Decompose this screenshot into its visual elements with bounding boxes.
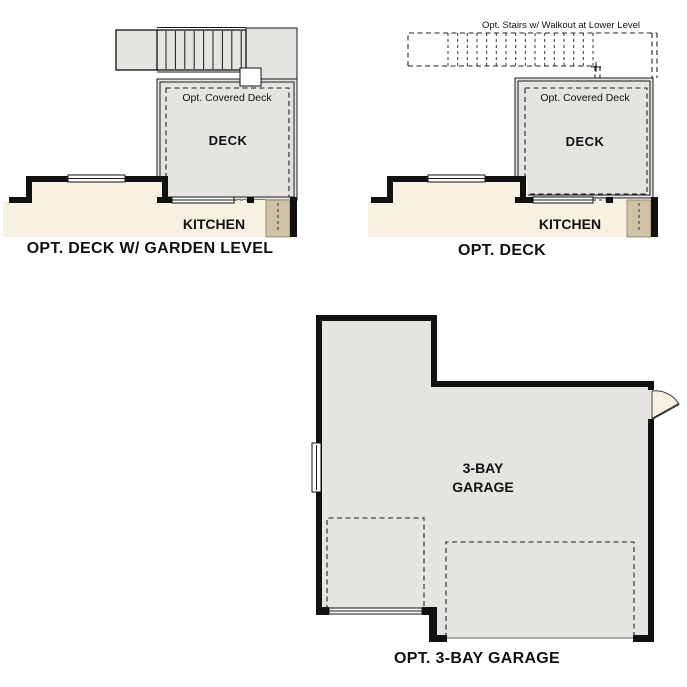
- kitchen-label: KITCHEN: [539, 216, 601, 232]
- plan-title: OPT. DECK W/ GARDEN LEVEL: [27, 240, 274, 257]
- opt-stairs-label: Opt. Stairs w/ Walkout at Lower Level: [482, 20, 640, 31]
- plan-opt-3bay-garage: 3-BAY GARAGE OPT. 3-BAY GARAGE: [312, 315, 679, 667]
- kitchen-wall: [651, 197, 658, 237]
- plan-title: OPT. 3-BAY GARAGE: [394, 650, 560, 667]
- floor-plan-canvas: Opt. Covered Deck DECK KITCHEN OPT. DECK…: [0, 0, 687, 687]
- garage-wall: [648, 381, 654, 390]
- kitchen-wall: [157, 197, 173, 203]
- kitchen-wall: [484, 176, 524, 182]
- kitchen-wall: [247, 197, 254, 203]
- plan-opt-deck: Opt. Stairs w/ Walkout at Lower Level Op…: [368, 20, 658, 259]
- garage-wall: [633, 635, 654, 642]
- floor-plan-sheet: Opt. Covered Deck DECK KITCHEN OPT. DECK…: [0, 0, 687, 687]
- kitchen-wall: [515, 197, 533, 203]
- covered-deck-label: Opt. Covered Deck: [540, 92, 630, 104]
- covered-deck-label: Opt. Covered Deck: [182, 92, 272, 104]
- kitchen-wall: [124, 176, 165, 182]
- staircase: [157, 30, 246, 70]
- garage-wall: [431, 381, 654, 387]
- opt-stairs-tread-lines: [448, 33, 593, 66]
- garage-room-label: GARAGE: [452, 479, 513, 495]
- garage-wall: [316, 315, 437, 321]
- kitchen-wall: [606, 197, 613, 203]
- door-swing-icon: [652, 391, 679, 419]
- garage-floor: [319, 318, 651, 638]
- garage-room-label: 3-BAY: [463, 460, 504, 476]
- garage-wall: [434, 635, 447, 642]
- stair-gate: [240, 68, 261, 86]
- deck-label: DECK: [566, 134, 605, 149]
- kitchen-wall: [290, 197, 297, 237]
- kitchen-label: KITCHEN: [183, 216, 245, 232]
- plan-opt-deck-garden-level: Opt. Covered Deck DECK KITCHEN OPT. DECK…: [3, 28, 297, 258]
- kitchen-wall: [9, 197, 32, 203]
- opt-stairs-outline: [408, 33, 657, 78]
- kitchen-wall: [387, 176, 429, 182]
- kitchen-wall: [371, 197, 393, 203]
- plan-title: OPT. DECK: [458, 242, 546, 259]
- stair-landing: [116, 30, 158, 70]
- garage-wall: [431, 315, 437, 387]
- kitchen-wall: [26, 176, 70, 182]
- garage-wall: [648, 419, 654, 642]
- deck-label: DECK: [209, 133, 248, 148]
